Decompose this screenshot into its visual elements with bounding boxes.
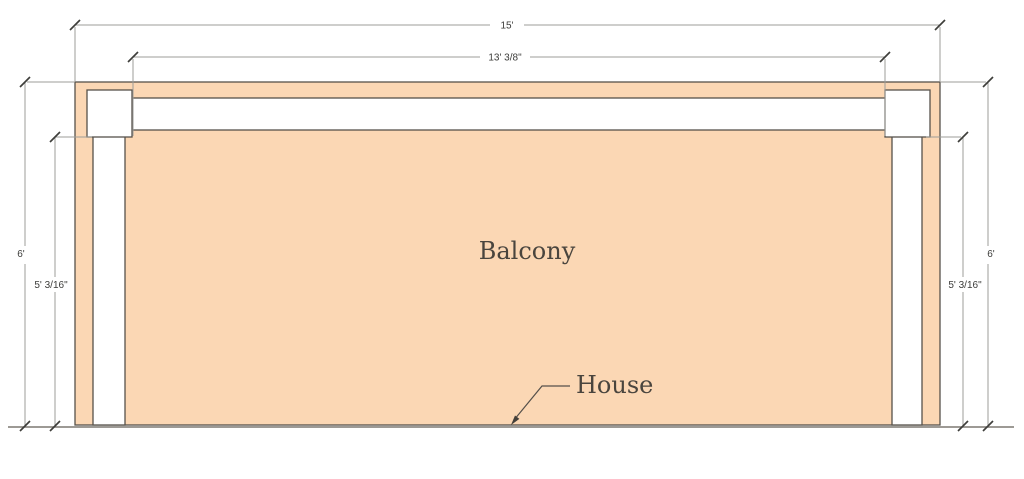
right-railing-strip xyxy=(892,130,922,425)
plan-drawing-canvas: 15' 13' 3/8" 6' 5' 3/1 xyxy=(0,0,1024,479)
house-label: House xyxy=(576,371,653,399)
right-post xyxy=(885,90,930,137)
dim-right-inner-label: 5' 3/16" xyxy=(948,280,982,291)
dim-left-inner-label: 5' 3/16" xyxy=(34,280,68,291)
balcony-label: Balcony xyxy=(479,237,576,265)
balcony-floor-plan: 15' 13' 3/8" 6' 5' 3/1 xyxy=(0,0,1024,479)
dim-right-outer: 6' xyxy=(941,77,995,431)
dim-top-outer-label: 15' xyxy=(500,21,513,32)
dim-top-inner-label: 13' 3/8" xyxy=(488,53,522,64)
dim-right-outer-label: 6' xyxy=(987,249,995,260)
dim-top-outer: 15' xyxy=(70,20,945,81)
left-post xyxy=(87,90,132,137)
dim-left-outer-label: 6' xyxy=(17,249,25,260)
dim-left-outer: 6' xyxy=(17,77,74,431)
top-railing-band xyxy=(110,98,905,130)
left-railing-strip xyxy=(93,130,125,425)
